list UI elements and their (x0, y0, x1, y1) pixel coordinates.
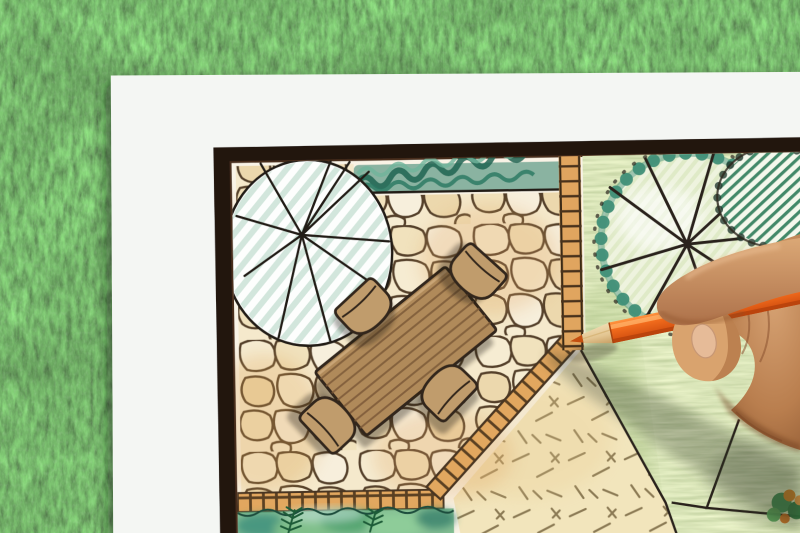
photo-stage (0, 0, 800, 533)
stepping-path (558, 154, 583, 350)
scene-illustration (0, 0, 800, 533)
